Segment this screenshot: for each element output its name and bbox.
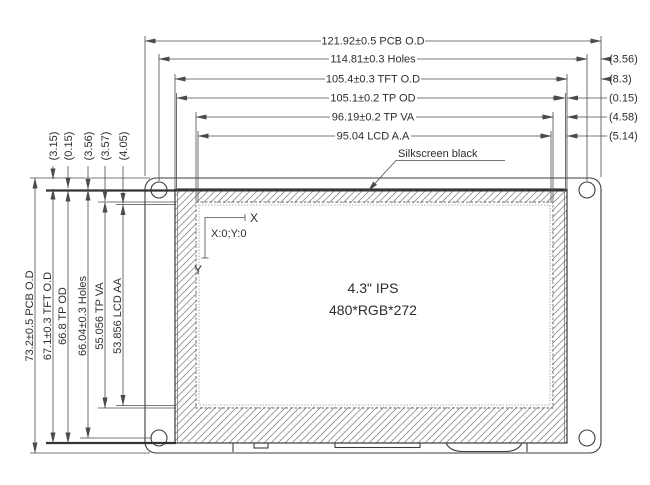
dimensions-right-offsets: (3.56) (8.3) (0.15) (4.58) (5.14) <box>539 54 638 143</box>
origin-coordinates: X:0;Y:0 <box>211 228 246 240</box>
dim-lcd-aa-height: 53.856 LCD AA <box>112 277 124 353</box>
dim-tp-va-height: 55.056 TP VA <box>94 282 106 350</box>
dim-tft-od-width: 105.4±0.3 TFT O.D <box>326 74 420 86</box>
dim-tft-od-height: 67.1±0.3 TFT O.D <box>42 272 54 360</box>
drawing-canvas: 121.92±0.5 PCB O.D 114.81±0.3 Holes 105.… <box>0 0 650 485</box>
dim-pcb-od-height: 73.2±0.5 PCB O.D <box>24 270 36 361</box>
mounting-hole-bottom-right <box>579 430 595 446</box>
panel-resolution-label: 480*RGB*272 <box>329 302 417 318</box>
silkscreen-label: Silkscreen black <box>398 148 478 160</box>
dim-tp-va-width: 96.19±0.2 TP VA <box>332 112 415 124</box>
dim-tp-od-height: 66.8 TP OD <box>57 287 69 345</box>
offset-tp-od-right: (0.15) <box>609 93 638 105</box>
mechanical-drawing: 121.92±0.5 PCB O.D 114.81±0.3 Holes 105.… <box>0 0 650 485</box>
pcb-small-tab <box>254 443 268 448</box>
dim-lcd-aa-width: 95.04 LCD A.A <box>337 131 410 143</box>
offset-holes-top: (3.56) <box>83 132 95 161</box>
offset-tft-right: (8.3) <box>609 74 632 86</box>
silkscreen-note: Silkscreen black <box>368 148 505 191</box>
mounting-hole-top-right <box>579 182 595 198</box>
fpc-connector-bump <box>446 443 522 452</box>
offset-tft-top: (3.15) <box>48 132 60 161</box>
dimensions-left: 73.2±0.5 PCB O.D 67.1±0.3 TFT O.D 66.8 T… <box>24 178 177 453</box>
offset-tp-va-top: (3.57) <box>100 132 112 161</box>
axis-x-label: X <box>250 211 258 225</box>
offset-tp-va-right: (4.58) <box>609 112 638 124</box>
offset-holes-right: (3.56) <box>609 54 638 66</box>
offset-lcd-aa-top: (4.05) <box>118 132 130 161</box>
dim-pcb-od-width: 121.92±0.5 PCB O.D <box>321 36 424 48</box>
axis-y-label: Y <box>194 263 202 277</box>
pcb-wide-tab <box>335 443 420 448</box>
panel-size-label: 4.3" IPS <box>348 280 399 296</box>
offset-tp-od-top: (0.15) <box>63 132 75 161</box>
dim-holes-height: 66.04±0.3 Holes <box>77 275 89 356</box>
dim-holes-width: 114.81±0.3 Holes <box>330 54 416 66</box>
offset-lcd-aa-right: (5.14) <box>609 131 638 143</box>
dim-tp-od-width: 105.1±0.2 TP OD <box>330 93 415 105</box>
dimensions-top-left-offsets: (3.15) (0.15) (3.56) (3.57) (4.05) <box>48 132 130 204</box>
